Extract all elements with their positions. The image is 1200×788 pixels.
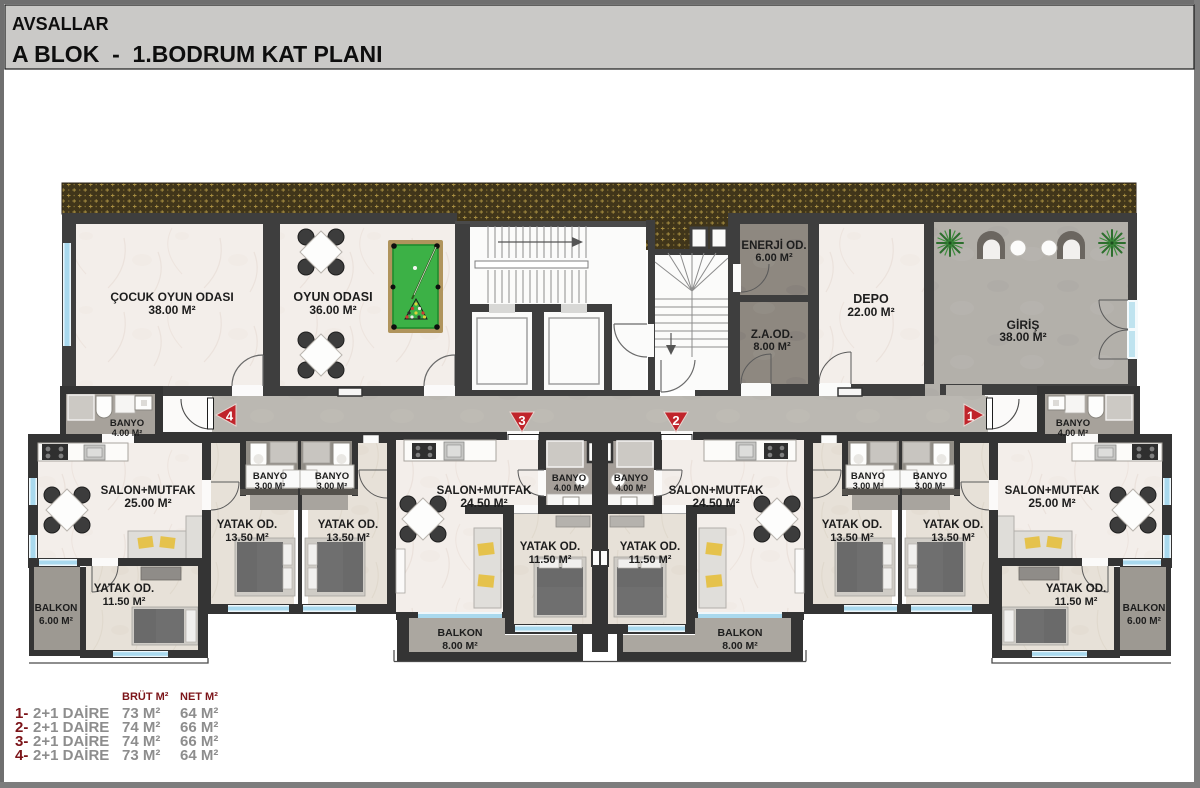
- svg-text:BRÜT M²: BRÜT M²: [122, 690, 169, 703]
- svg-text:3.00 M²: 3.00 M²: [915, 481, 946, 491]
- svg-text:ÇOCUK OYUN ODASI: ÇOCUK OYUN ODASI: [110, 290, 233, 304]
- svg-text:8.00 M²: 8.00 M²: [442, 640, 478, 652]
- svg-text:11.50 M²: 11.50 M²: [1055, 596, 1098, 608]
- svg-text:YATAK OD.: YATAK OD.: [94, 583, 155, 595]
- svg-text:YATAK OD.: YATAK OD.: [822, 519, 883, 531]
- svg-text:4.00 M²: 4.00 M²: [554, 483, 585, 493]
- svg-text:73 M²: 73 M²: [122, 747, 160, 764]
- svg-text:6.00 M²: 6.00 M²: [39, 616, 74, 627]
- svg-text:YATAK OD.: YATAK OD.: [620, 541, 681, 553]
- svg-text:3.00 M²: 3.00 M²: [317, 481, 348, 491]
- svg-text:BALKON: BALKON: [438, 627, 483, 639]
- svg-text:38.00 M²: 38.00 M²: [148, 303, 195, 317]
- svg-text:25.00 M²: 25.00 M²: [124, 496, 171, 510]
- svg-text:DEPO: DEPO: [853, 292, 889, 306]
- svg-text:2: 2: [672, 413, 679, 428]
- svg-text:11.50 M²: 11.50 M²: [529, 554, 572, 566]
- svg-text:6.00 M²: 6.00 M²: [755, 252, 793, 264]
- svg-text:13.50 M²: 13.50 M²: [326, 532, 370, 544]
- svg-text:4-: 4-: [15, 747, 28, 764]
- svg-text:BALKON: BALKON: [35, 603, 78, 614]
- svg-text:BALKON: BALKON: [1123, 603, 1166, 614]
- svg-text:64 M²: 64 M²: [180, 747, 218, 764]
- svg-text:4: 4: [226, 409, 234, 424]
- svg-text:8.00 M²: 8.00 M²: [753, 341, 791, 353]
- svg-text:22.00 M²: 22.00 M²: [847, 305, 894, 319]
- svg-text:AVSALLAR: AVSALLAR: [12, 14, 109, 34]
- svg-text:A BLOK - 1.BODRUM KAT PLANI: A BLOK - 1.BODRUM KAT PLANI: [12, 41, 383, 67]
- svg-text:OYUN ODASI: OYUN ODASI: [293, 290, 372, 304]
- svg-text:4.00 M²: 4.00 M²: [1058, 428, 1089, 438]
- svg-text:25.00 M²: 25.00 M²: [1028, 496, 1075, 510]
- svg-text:38.00 M²: 38.00 M²: [999, 330, 1046, 344]
- svg-text:4.00 M²: 4.00 M²: [112, 428, 143, 438]
- svg-text:24.50 M²: 24.50 M²: [692, 496, 739, 510]
- svg-text:BALKON: BALKON: [718, 627, 763, 639]
- svg-text:8.00 M²: 8.00 M²: [722, 640, 758, 652]
- svg-text:2+1 DAİRE: 2+1 DAİRE: [33, 747, 109, 764]
- svg-text:13.50 M²: 13.50 M²: [931, 532, 975, 544]
- svg-text:4.00 M²: 4.00 M²: [616, 483, 647, 493]
- svg-text:3.00 M²: 3.00 M²: [255, 481, 286, 491]
- svg-text:36.00 M²: 36.00 M²: [309, 303, 356, 317]
- svg-text:13.50 M²: 13.50 M²: [830, 532, 874, 544]
- svg-text:YATAK OD.: YATAK OD.: [520, 541, 581, 553]
- svg-text:ENERJİ OD.: ENERJİ OD.: [741, 239, 806, 252]
- svg-text:YATAK OD.: YATAK OD.: [217, 519, 278, 531]
- svg-text:13.50 M²: 13.50 M²: [225, 532, 269, 544]
- svg-text:6.00 M²: 6.00 M²: [1127, 616, 1162, 627]
- svg-text:11.50 M²: 11.50 M²: [629, 554, 672, 566]
- svg-text:24.50 M²: 24.50 M²: [460, 496, 507, 510]
- svg-text:11.50 M²: 11.50 M²: [103, 596, 146, 608]
- svg-text:YATAK OD.: YATAK OD.: [923, 519, 984, 531]
- svg-text:1: 1: [967, 409, 974, 424]
- svg-text:NET M²: NET M²: [180, 691, 218, 703]
- svg-text:YATAK OD.: YATAK OD.: [1046, 583, 1107, 595]
- svg-text:Z.A.OD.: Z.A.OD.: [751, 329, 793, 341]
- svg-text:YATAK OD.: YATAK OD.: [318, 519, 379, 531]
- svg-text:3.00 M²: 3.00 M²: [853, 481, 884, 491]
- svg-text:3: 3: [518, 413, 525, 428]
